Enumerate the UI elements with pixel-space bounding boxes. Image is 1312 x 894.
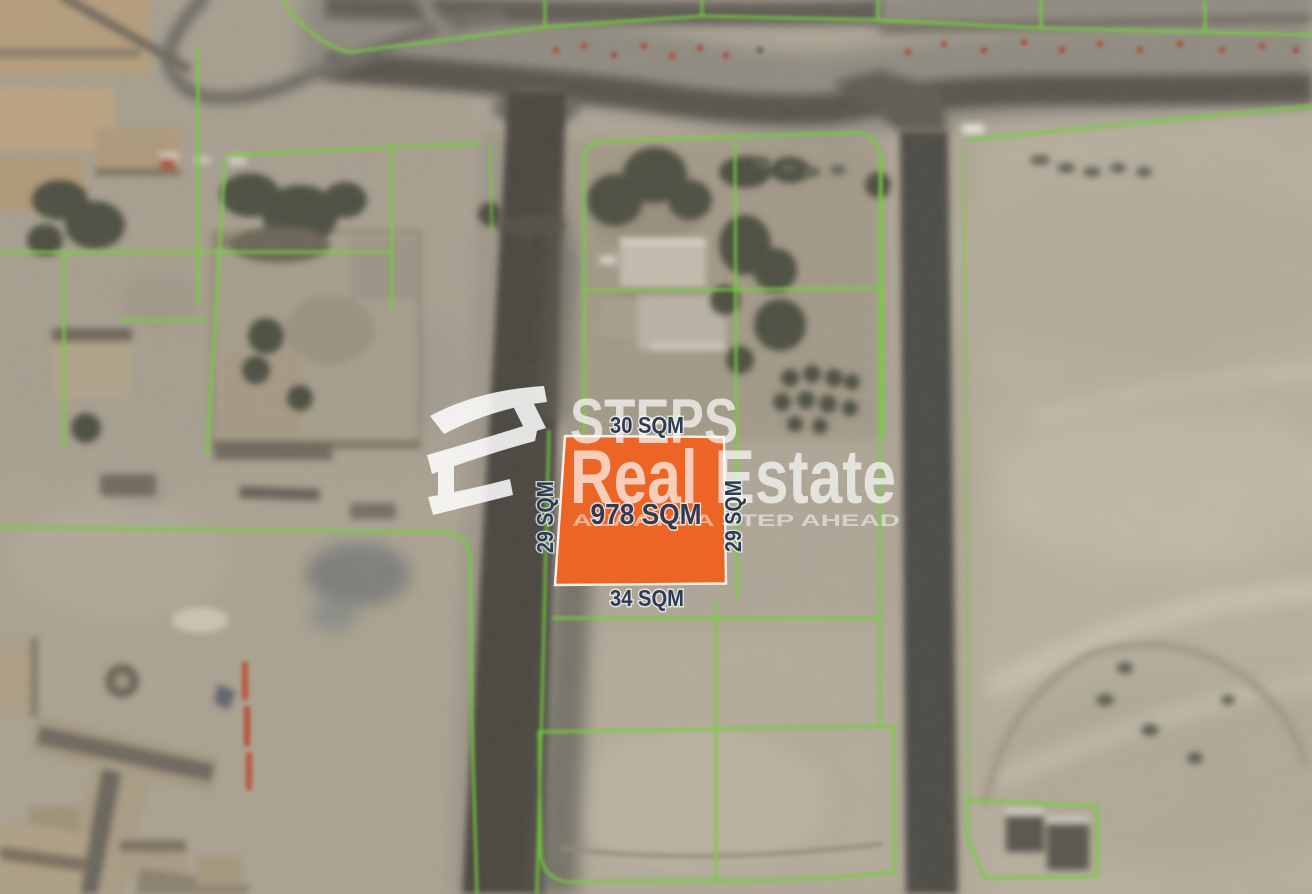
svg-text:34 SQM: 34 SQM — [610, 585, 684, 611]
svg-text:29 SQM: 29 SQM — [720, 480, 746, 552]
svg-text:30 SQM: 30 SQM — [610, 412, 684, 438]
svg-text:978 SQM: 978 SQM — [591, 499, 702, 531]
svg-text:29 SQM: 29 SQM — [532, 481, 558, 553]
